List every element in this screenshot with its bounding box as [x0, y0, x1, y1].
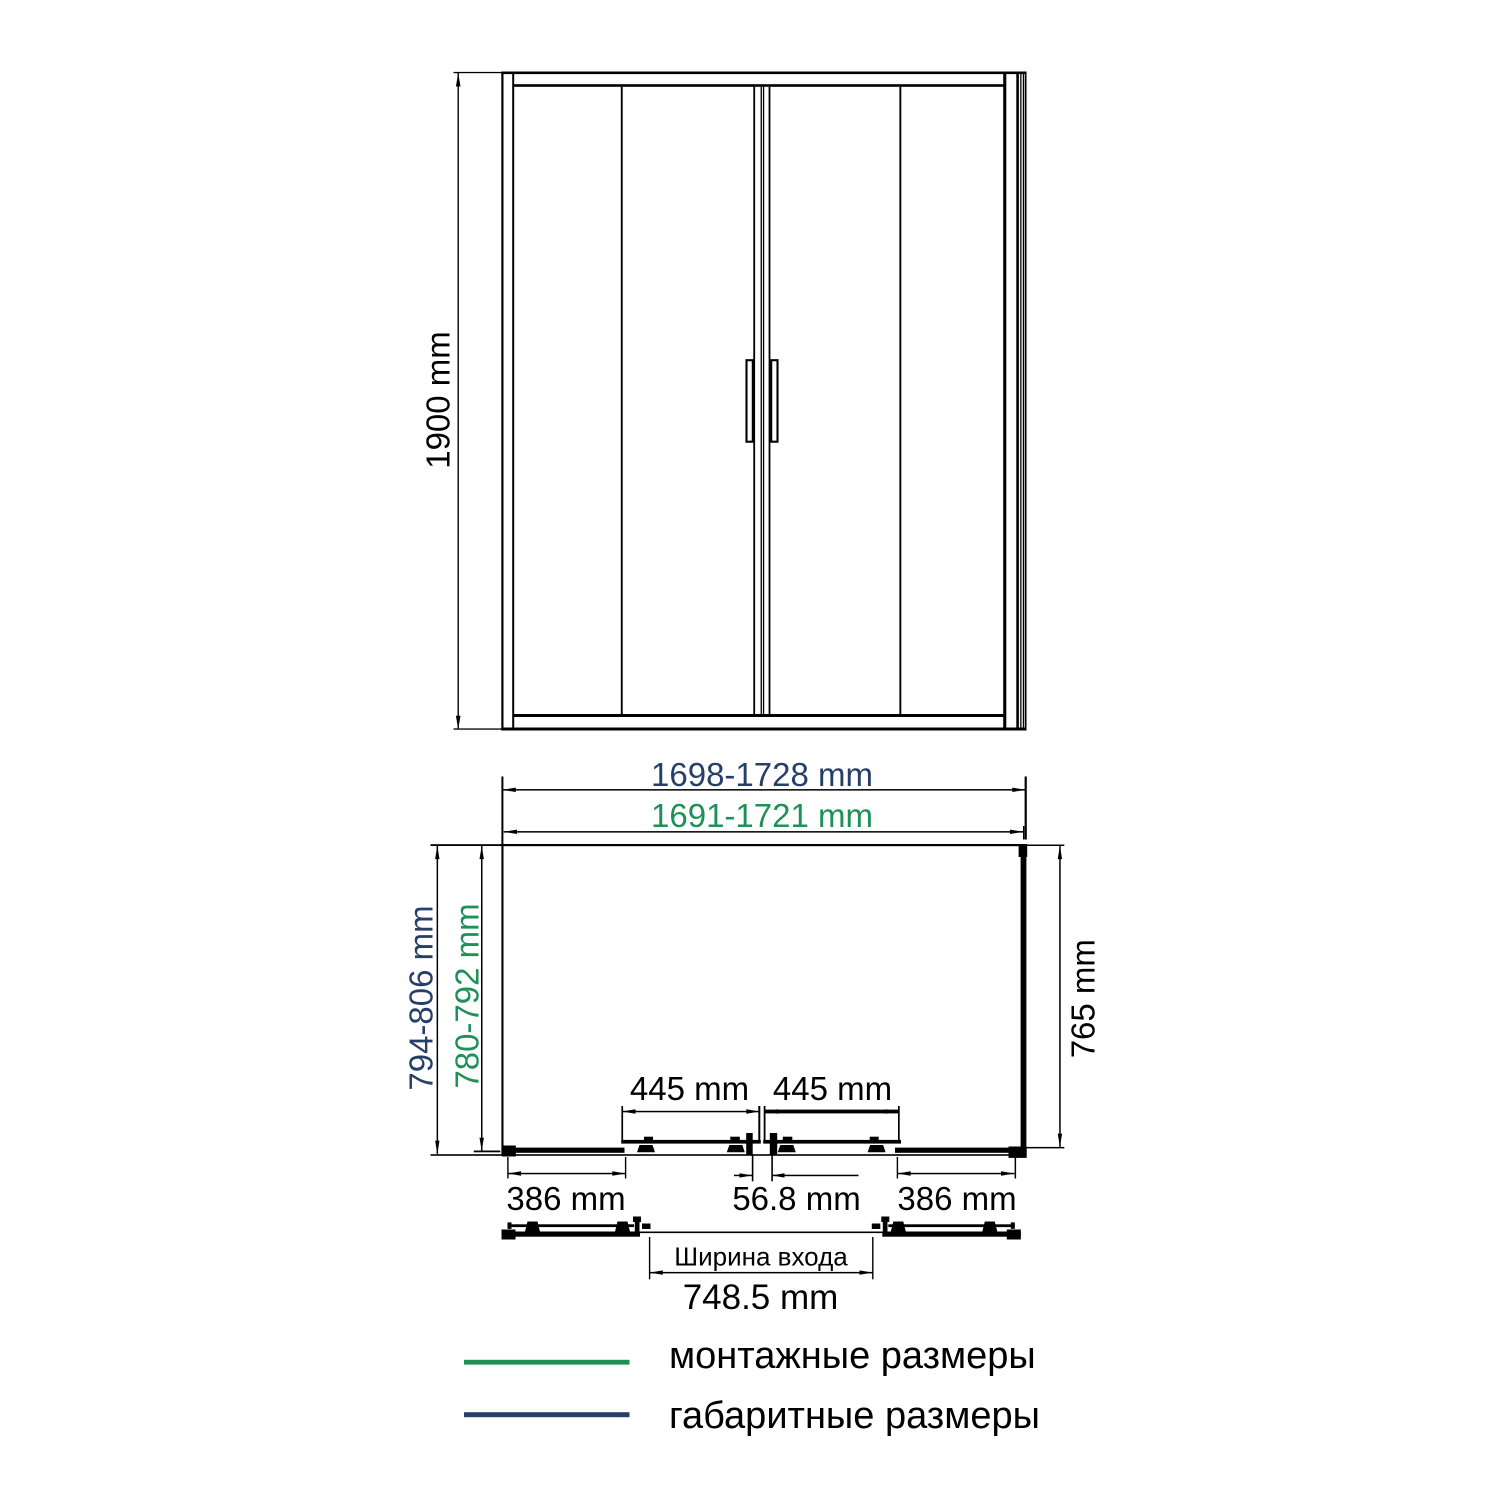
svg-text:1691-1721 mm: 1691-1721 mm [651, 797, 873, 834]
svg-text:794-806 mm: 794-806 mm [403, 905, 440, 1090]
svg-text:56.8 mm: 56.8 mm [732, 1180, 860, 1217]
svg-text:1900 mm: 1900 mm [420, 331, 457, 469]
svg-text:габаритные размеры: габаритные размеры [669, 1395, 1040, 1437]
svg-text:1698-1728 mm: 1698-1728 mm [651, 756, 873, 793]
svg-text:монтажные размеры: монтажные размеры [669, 1335, 1036, 1377]
svg-text:748.5 mm: 748.5 mm [683, 1278, 839, 1317]
svg-text:780-792 mm: 780-792 mm [449, 903, 486, 1088]
svg-text:445 mm: 445 mm [773, 1070, 892, 1107]
svg-text:Ширина входа: Ширина входа [674, 1242, 848, 1272]
svg-text:765 mm: 765 mm [1065, 939, 1102, 1058]
svg-text:386 mm: 386 mm [506, 1180, 625, 1217]
svg-text:386 mm: 386 mm [897, 1180, 1016, 1217]
svg-text:445 mm: 445 mm [630, 1070, 749, 1107]
